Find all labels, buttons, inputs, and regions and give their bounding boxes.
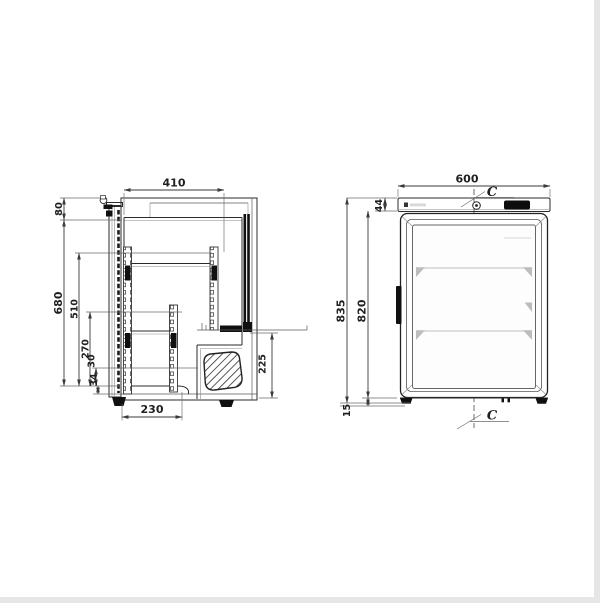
- shelf-bracket: [125, 266, 131, 281]
- drawing-canvas: 410 80 680 510 270: [0, 0, 600, 603]
- dim-30: 30: [87, 354, 199, 386]
- valve-body: [220, 326, 242, 333]
- rear-foot: [219, 400, 234, 407]
- dim-34: 34: [89, 373, 122, 394]
- dim-225: 225: [250, 333, 278, 398]
- dim-80-label: 80: [54, 202, 65, 216]
- brand-logo: [404, 203, 408, 208]
- refrigerator-dimension-drawing: 410 80 680 510 270: [0, 0, 600, 603]
- shelf-rails: [124, 247, 219, 394]
- brand-logo-text: [410, 204, 426, 207]
- dim-230-label: 230: [141, 403, 164, 416]
- dim-230: 230: [122, 392, 182, 421]
- dim-15: 15: [340, 398, 405, 417]
- shelf-bracket: [125, 333, 131, 348]
- drain-tick: [508, 398, 511, 402]
- front-view: 600 C 44 835 820: [335, 173, 551, 430]
- dim-820: 820: [356, 211, 398, 398]
- door-hinge: [100, 196, 112, 217]
- front-foot: [112, 397, 126, 406]
- door-handle: [396, 286, 402, 324]
- dim-15-label: 15: [342, 404, 353, 417]
- door-lock-keyhole: [475, 204, 478, 207]
- compressor: [204, 352, 242, 407]
- drain-tick: [502, 398, 505, 402]
- dim-30-label: 30: [87, 354, 98, 368]
- dim-510-label: 510: [70, 299, 81, 319]
- dim-680-label: 680: [52, 291, 65, 314]
- centerline-letter-bottom: C: [487, 409, 498, 424]
- dim-34-label: 34: [89, 373, 100, 387]
- dim-820-label: 820: [356, 299, 369, 322]
- shelf-bracket: [171, 333, 177, 348]
- side-section-view: 410 80 680 510 270: [52, 177, 307, 421]
- dim-225-label: 225: [258, 354, 269, 374]
- dim-410: 410: [124, 177, 224, 253]
- page-border-bottom: [0, 597, 600, 603]
- condenser-coil: [243, 214, 252, 332]
- dim-835-label: 835: [335, 300, 348, 323]
- dim-44-label: 44: [374, 199, 385, 213]
- dim-600-label: 600: [456, 173, 479, 186]
- glass-door: [396, 214, 548, 398]
- centerline-label-bottom: C: [457, 409, 509, 430]
- control-display: [504, 201, 530, 210]
- dim-410-label: 410: [163, 177, 186, 190]
- page-border-right: [594, 0, 600, 603]
- dim-44: 44: [347, 198, 397, 212]
- centerline-letter-top: C: [487, 185, 498, 200]
- shelf-bracket: [212, 266, 218, 281]
- right-foot: [536, 398, 549, 404]
